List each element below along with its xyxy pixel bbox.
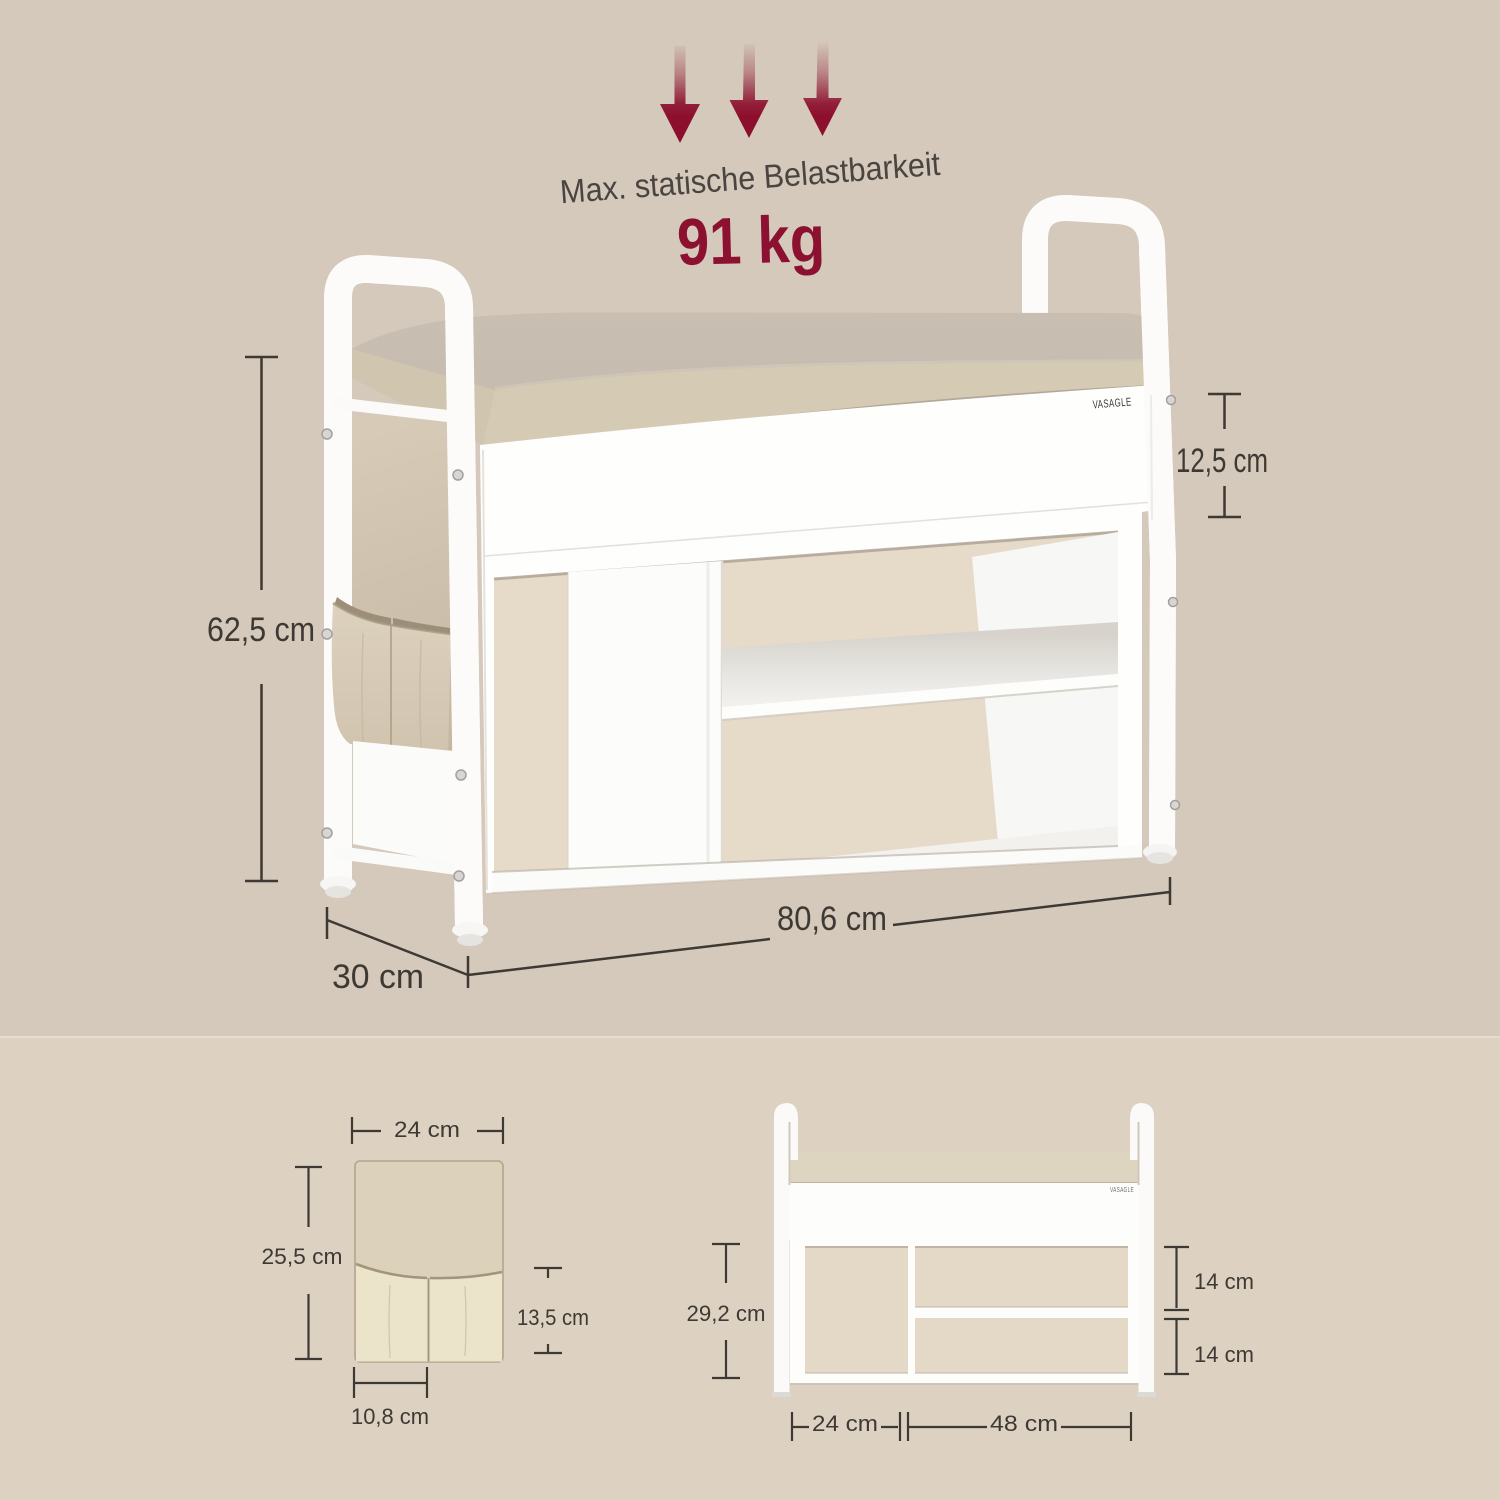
svg-text:29,2 cm: 29,2 cm	[687, 1301, 766, 1326]
svg-text:30 cm: 30 cm	[332, 958, 424, 996]
svg-text:25,5 cm: 25,5 cm	[262, 1244, 343, 1269]
svg-text:14 cm: 14 cm	[1194, 1342, 1254, 1367]
svg-text:91 kg: 91 kg	[676, 201, 826, 279]
svg-text:24 cm: 24 cm	[394, 1117, 460, 1142]
svg-text:10,8 cm: 10,8 cm	[351, 1404, 429, 1429]
svg-text:13,5 cm: 13,5 cm	[517, 1305, 589, 1330]
svg-text:80,6 cm: 80,6 cm	[777, 900, 887, 938]
svg-text:24 cm: 24 cm	[812, 1411, 878, 1436]
svg-text:48 cm: 48 cm	[990, 1411, 1058, 1436]
svg-text:14 cm: 14 cm	[1194, 1269, 1254, 1294]
svg-text:VASAGLE: VASAGLE	[1110, 1185, 1134, 1194]
svg-text:62,5 cm: 62,5 cm	[207, 611, 315, 649]
svg-text:12,5 cm: 12,5 cm	[1176, 442, 1268, 480]
